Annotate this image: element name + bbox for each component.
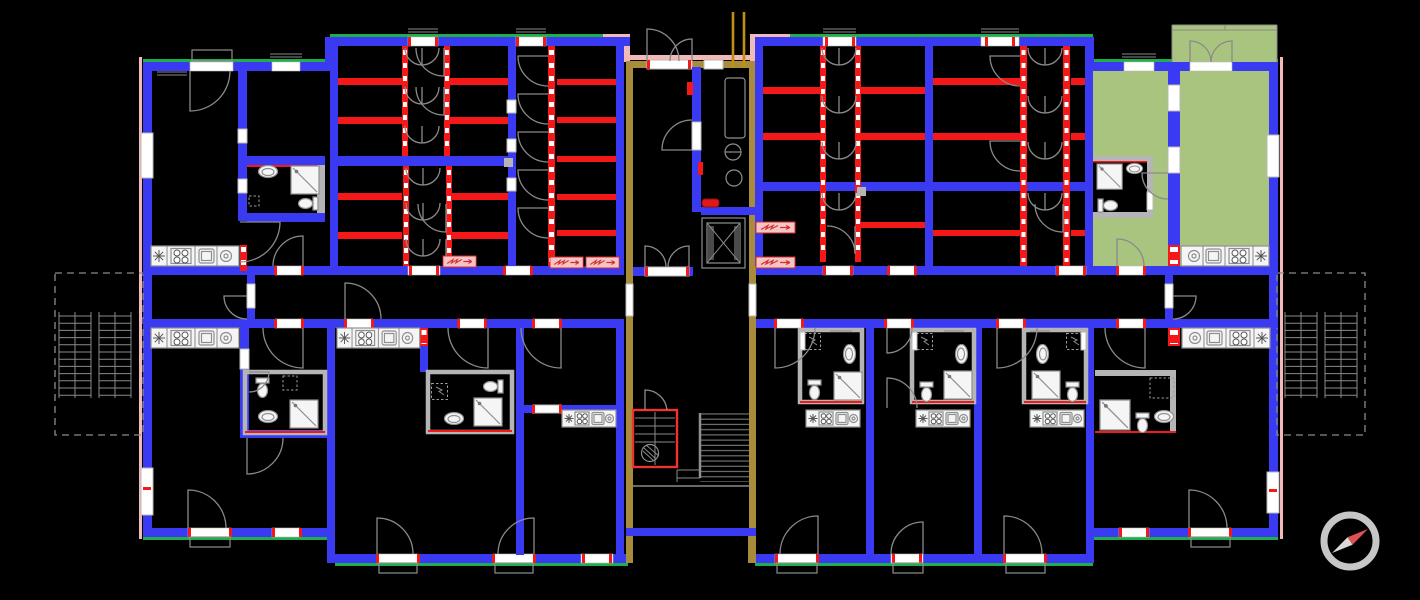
balcony-olive (1172, 25, 1277, 62)
apartments-bottom-right (775, 327, 1270, 555)
compass-icon (1324, 515, 1376, 567)
elevator-1 (725, 78, 745, 138)
cell-cluster-right-2 (933, 37, 1093, 266)
bathroom-e (912, 330, 974, 403)
cell-cluster-left-1 (330, 46, 516, 267)
balcony-zone-left (55, 273, 143, 435)
cell-cluster-right-1 (755, 37, 933, 268)
floor-plan-screenshot (0, 0, 1420, 600)
stair-core (626, 12, 756, 563)
cell-cluster-left-2 (507, 37, 624, 268)
staircase (633, 390, 752, 486)
corridor-right (755, 266, 1278, 328)
bathroom-g (1095, 370, 1176, 433)
bathroom-bc (420, 328, 512, 432)
bathroom-d (800, 330, 862, 403)
bathroom-highlighted (1093, 156, 1153, 218)
floor-plan-canvas (0, 0, 1420, 600)
bathroom-f (1024, 330, 1086, 403)
elevator-2 (702, 218, 745, 268)
balcony-zone-right (1277, 273, 1365, 435)
apartment-top-left (151, 71, 325, 271)
fire-valve (702, 199, 719, 207)
bathroom-a (245, 372, 325, 433)
corridor-left (143, 266, 624, 328)
